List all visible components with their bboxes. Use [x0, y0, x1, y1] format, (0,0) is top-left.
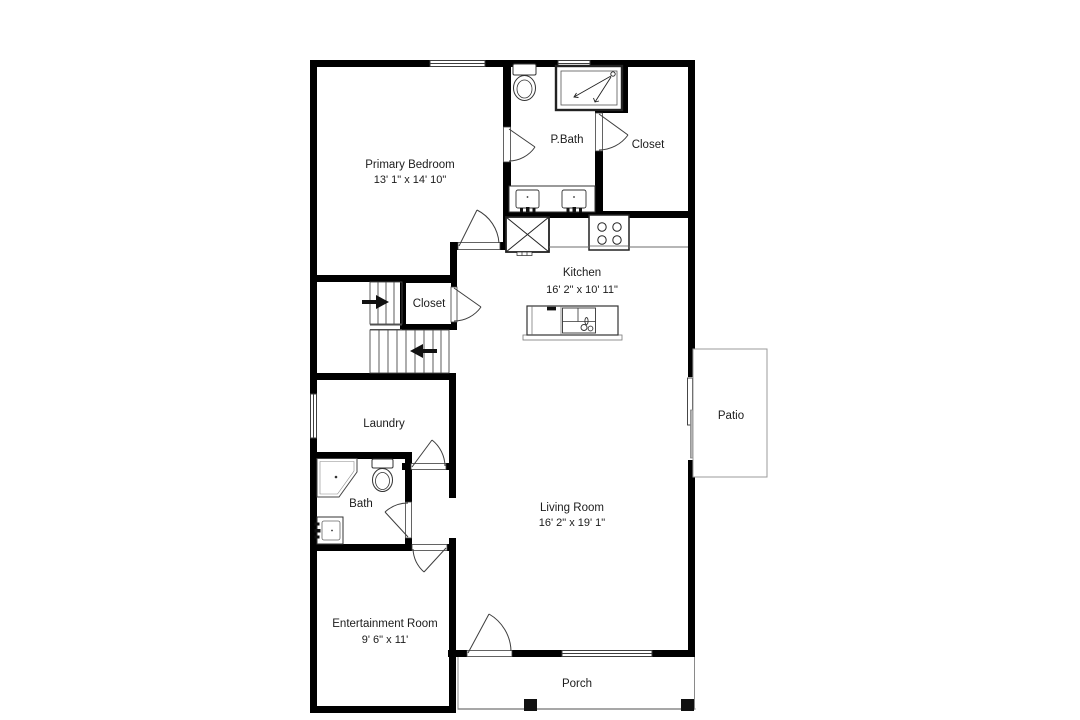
wall-segment — [446, 463, 456, 470]
room-label-bath: Bath — [349, 498, 373, 510]
wall-segment — [449, 373, 456, 498]
room-label-primary-bedroom: Primary Bedroom — [365, 159, 454, 171]
room-label-living-room: Living Room — [540, 502, 604, 514]
wall-segment — [310, 60, 317, 394]
porch-post — [524, 699, 537, 711]
stairs-up-arrow-icon — [362, 295, 389, 309]
room-dims-kitchen: 16' 2" x 10' 11" — [546, 284, 618, 296]
room-label-closet-main: Closet — [632, 139, 665, 151]
wall-segment — [503, 60, 511, 127]
room-label-entertainment: Entertainment Room — [332, 618, 437, 630]
wall-segment — [400, 324, 457, 330]
pbath-shower-icon — [556, 66, 622, 110]
floorplan-canvas: Primary Bedroom 13' 1" x 14' 10" P.Bath … — [0, 0, 1080, 720]
bedroom-window-icon — [430, 61, 485, 67]
kitchen-island-icon — [523, 306, 622, 340]
bath-toilet-icon — [372, 459, 393, 492]
room-label-patio: Patio — [718, 410, 744, 422]
wall-segment — [688, 60, 695, 377]
door-main-closet-icon — [596, 113, 629, 151]
room-dims-entertainment: 9' 6" x 11' — [362, 634, 408, 646]
room-label-porch: Porch — [562, 678, 592, 690]
wall-segment — [310, 438, 317, 713]
wall-segment — [405, 452, 412, 502]
door-bath-icon — [385, 502, 412, 538]
wall-segment — [652, 650, 695, 657]
wall-segment — [310, 706, 456, 713]
wall-segment — [512, 650, 562, 657]
wall-segment — [400, 277, 406, 330]
room-label-laundry: Laundry — [363, 418, 405, 430]
room-label-pbath: P.Bath — [550, 134, 583, 146]
floorplan: Primary Bedroom 13' 1" x 14' 10" P.Bath … — [0, 0, 1080, 720]
room-dims-primary-bedroom: 13' 1" x 14' 10" — [374, 174, 447, 186]
room-label-closet-stairs: Closet — [413, 298, 446, 310]
laundry-window-icon — [311, 394, 317, 438]
front-door-icon — [467, 614, 512, 657]
wall-segment — [310, 373, 456, 380]
door-entertainment-icon — [412, 545, 447, 573]
door-pbath-icon — [504, 127, 536, 162]
wall-segment — [451, 322, 457, 330]
pbath-toilet-icon — [513, 64, 536, 101]
wall-segment — [310, 452, 412, 459]
door-stair-closet-icon — [451, 287, 481, 322]
wall-segment — [688, 460, 695, 657]
wall-segment — [400, 277, 457, 283]
wall-segment — [310, 544, 412, 551]
bath-corner-shower-icon — [317, 459, 357, 498]
stove-icon — [589, 215, 629, 250]
door-laundry-icon — [411, 440, 446, 470]
wall-segment — [595, 151, 603, 218]
refrigerator-icon — [506, 217, 549, 256]
porch-post — [681, 699, 694, 711]
room-dims-living-room: 16' 2" x 19' 1" — [539, 517, 606, 529]
door-bedroom-icon — [458, 210, 500, 250]
wall-segment — [449, 538, 456, 713]
room-label-kitchen: Kitchen — [563, 267, 601, 279]
bath-vanity-icon — [315, 517, 344, 544]
livingroom-window-icon — [562, 651, 652, 657]
pbath-double-vanity-icon — [509, 186, 595, 213]
wall-segment — [451, 277, 457, 287]
walls — [310, 60, 695, 713]
wall-segment — [310, 60, 430, 67]
